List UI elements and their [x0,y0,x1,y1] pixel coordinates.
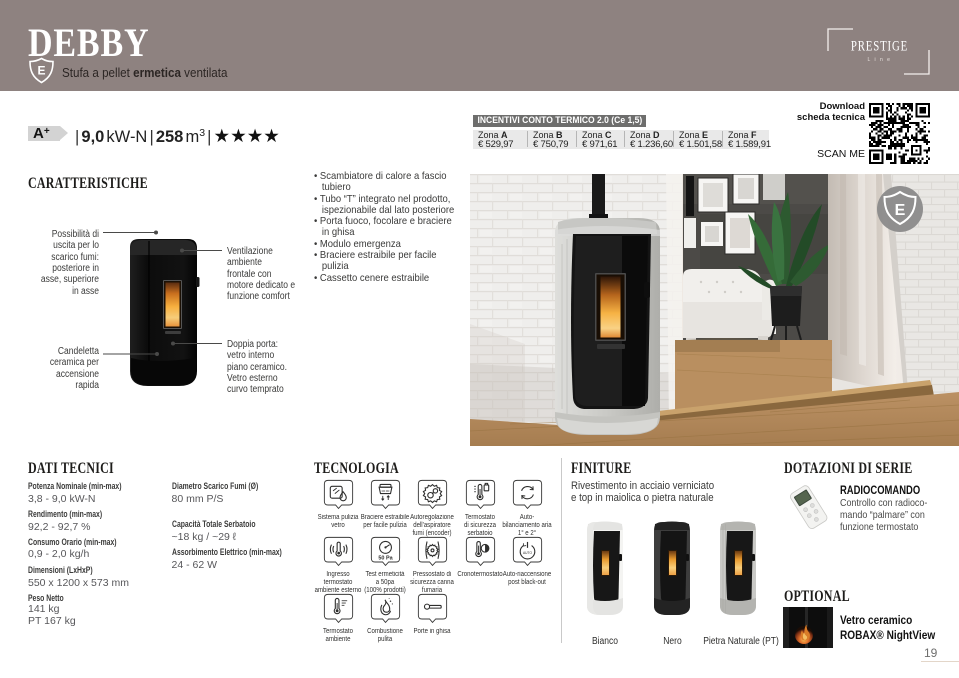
svg-text:E: E [895,202,906,219]
svg-text:PRESTIGE: PRESTIGE [851,37,908,54]
svg-text:50 Pa: 50 Pa [378,555,393,561]
svg-text:00:00: 00:00 [381,489,389,493]
svg-text:AUTO: AUTO [522,551,531,555]
svg-text:E: E [37,64,45,78]
svg-text:L i n e: L i n e [868,57,892,63]
